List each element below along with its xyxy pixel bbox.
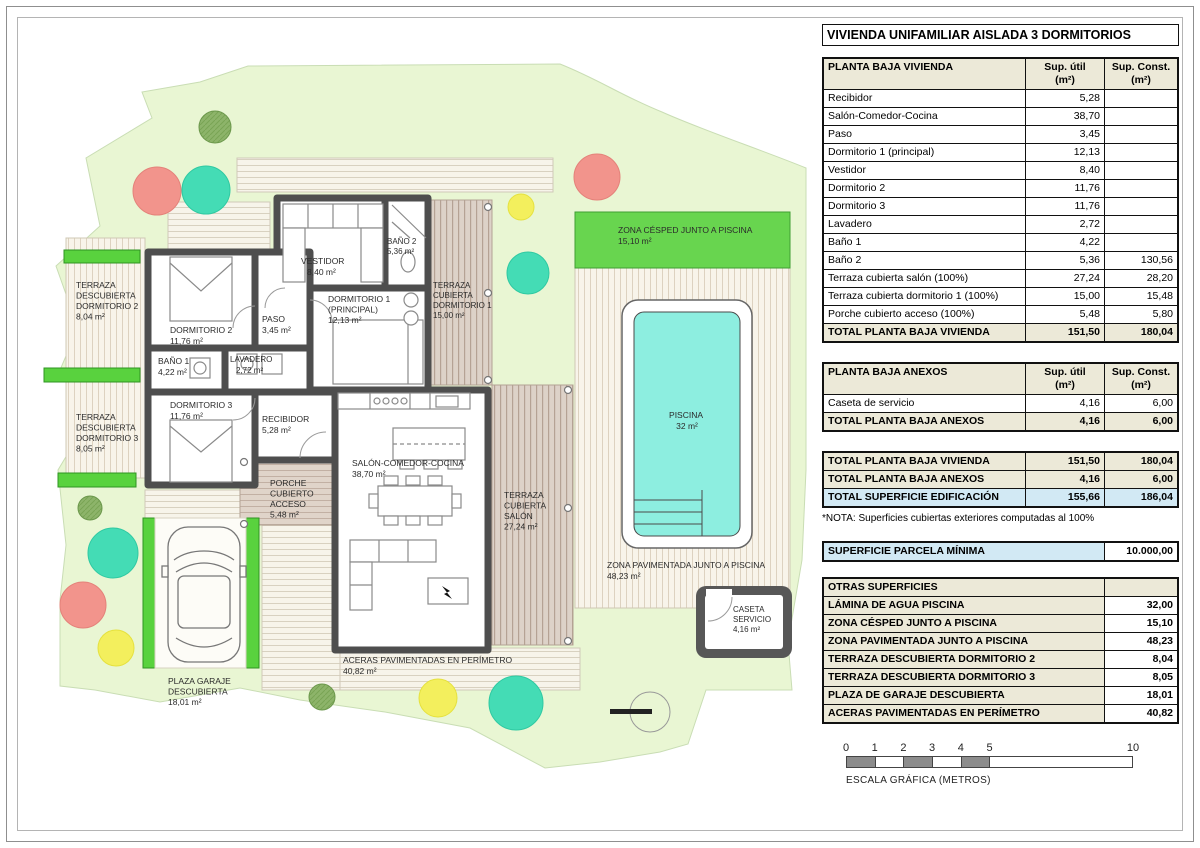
table-row: Salón-Comedor-Cocina38,70	[824, 108, 1177, 126]
table-total-row: TOTAL PLANTA BAJA VIVIENDA151,50180,04	[824, 324, 1177, 341]
table-row: PLAZA DE GARAJE DESCUBIERTA18,01	[824, 687, 1177, 705]
label-paso: PASO 3,45 m²	[262, 314, 291, 335]
table-row: SUPERFICIE PARCELA MÍNIMA 10.000,00	[824, 543, 1177, 560]
table-total-row: TOTAL PLANTA BAJA ANEXOS4,166,00	[824, 471, 1177, 489]
table-header-row: OTRAS SUPERFICIES	[824, 579, 1177, 597]
table-row: Terraza cubierta dormitorio 1 (100%)15,0…	[824, 288, 1177, 306]
bed-dorm1	[333, 320, 423, 384]
table-row: Vestidor8,40	[824, 162, 1177, 180]
table-row: Dormitorio 211,76	[824, 180, 1177, 198]
bed-dorm3	[170, 420, 232, 482]
table-row: Baño 14,22	[824, 234, 1177, 252]
table-row: Recibidor5,28	[824, 90, 1177, 108]
label-bano2: BAÑO 2 5,36 m²	[387, 237, 419, 256]
table-otras-superficies: OTRAS SUPERFICIES LÁMINA DE AGUA PISCINA…	[822, 577, 1179, 724]
table-total-row: TOTAL PLANTA BAJA ANEXOS4,166,00	[824, 413, 1177, 430]
table-row: ZONA PAVIMENTADA JUNTO A PISCINA48,23	[824, 633, 1177, 651]
table-row: Porche cubierto acceso (100%)5,485,80	[824, 306, 1177, 324]
grass-band-pool	[575, 212, 790, 268]
col-header-util: Sup. útil (m²)	[1026, 59, 1105, 90]
car	[162, 527, 246, 662]
label-garaje: PLAZA GARAJE DESCUBIERTA 18,01 m²	[168, 676, 233, 707]
table-grand-total-row: TOTAL SUPERFICIE EDIFICACIÓN155,66186,04	[824, 489, 1177, 506]
graphic-scale: 0 1 2 3 4 5 10 ESCALA GRÁFICA (METROS)	[846, 742, 1146, 786]
sofa	[350, 540, 436, 562]
table-header-row: PLANTA BAJA ANEXOS Sup. útil (m²) Sup. C…	[824, 364, 1177, 395]
table-row: Terraza cubierta salón (100%)27,2428,20	[824, 270, 1177, 288]
table-header-row: PLANTA BAJA VIVIENDA Sup. útil (m²) Sup.…	[824, 59, 1177, 90]
summary-panel: VIVIENDA UNIFAMILIAR AISLADA 3 DORMITORI…	[822, 24, 1179, 724]
table-row: TERRAZA DESCUBIERTA DORMITORIO 28,04	[824, 651, 1177, 669]
footnote: *NOTA: Superficies cubiertas exteriores …	[822, 513, 1179, 524]
table-planta-baja-vivienda: PLANTA BAJA VIVIENDA Sup. útil (m²) Sup.…	[822, 57, 1179, 343]
label-bano1: BAÑO 1 4,22 m²	[158, 356, 192, 377]
col-header-const: Sup. Const. (m²)	[1105, 59, 1177, 90]
dining-table	[378, 486, 452, 516]
table-row: Dormitorio 311,76	[824, 198, 1177, 216]
scale-tick-labels: 0 1 2 3 4 5 10	[846, 742, 1146, 756]
table-planta-baja-anexos: PLANTA BAJA ANEXOS Sup. útil (m²) Sup. C…	[822, 362, 1179, 432]
table-row: Paso3,45	[824, 126, 1177, 144]
col-header-label: PLANTA BAJA VIVIENDA	[824, 59, 1026, 90]
table-parcela-minima: SUPERFICIE PARCELA MÍNIMA 10.000,00	[822, 541, 1179, 562]
table-total-row: TOTAL PLANTA BAJA VIVIENDA151,50180,04	[824, 453, 1177, 471]
table-row: Dormitorio 1 (principal)12,13	[824, 144, 1177, 162]
scale-label: ESCALA GRÁFICA (METROS)	[846, 775, 1146, 786]
table-row: Lavadero2,72	[824, 216, 1177, 234]
table-row: LÁMINA DE AGUA PISCINA32,00	[824, 597, 1177, 615]
scale-bar	[846, 756, 1133, 768]
table-row: ZONA CÉSPED JUNTO A PISCINA15,10	[824, 615, 1177, 633]
table-row: ACERAS PAVIMENTADAS EN PERÍMETRO40,82	[824, 705, 1177, 722]
bed-dorm2	[170, 257, 232, 321]
sheet-title: VIVIENDA UNIFAMILIAR AISLADA 3 DORMITORI…	[822, 24, 1179, 46]
table-totales: TOTAL PLANTA BAJA VIVIENDA151,50180,04 T…	[822, 451, 1179, 508]
table-row: TERRAZA DESCUBIERTA DORMITORIO 38,05	[824, 669, 1177, 687]
table-row: Baño 25,36130,56	[824, 252, 1177, 270]
table-row: Caseta de servicio4,166,00	[824, 395, 1177, 413]
